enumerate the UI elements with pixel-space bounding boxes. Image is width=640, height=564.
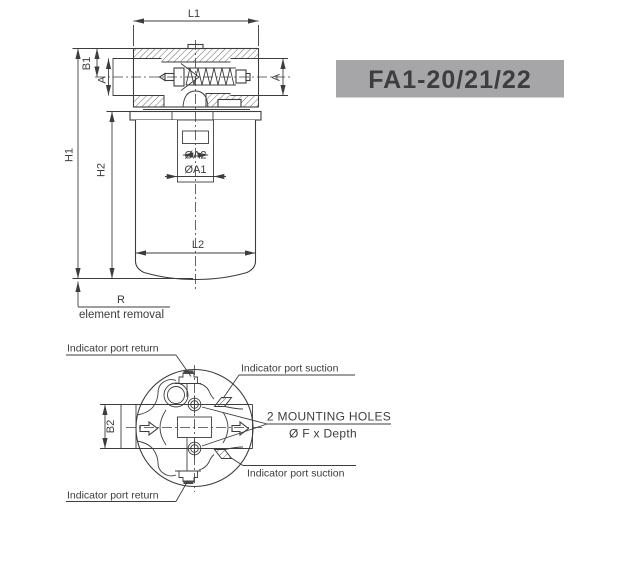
annotation-return-bottom: Indicator port return: [66, 481, 188, 502]
mounting-holes-spec: Ø F x Depth: [289, 427, 357, 441]
model-banner: FA1-20/21/22: [336, 60, 564, 98]
side-view: L1 H1 H2 B1 A A: [64, 8, 294, 321]
annotation-suction-bottom: Indicator port suction: [231, 458, 357, 480]
dim-a-right-label: A: [271, 73, 283, 81]
bottom-view: B2 Indicator port return Indicator port …: [66, 343, 391, 502]
dim-a-left-label: A: [97, 76, 109, 84]
dim-r-element-removal: R element removal: [78, 282, 170, 322]
element-removal-note: element removal: [79, 309, 164, 321]
return-fitting-bottom: [175, 438, 201, 484]
dim-da2-label: ØA2: [184, 150, 206, 162]
dim-da2: ØA2: [183, 150, 208, 162]
diagram-canvas: L1 H1 H2 B1 A A: [0, 0, 640, 564]
suction-port-wedge-bottom: [215, 450, 232, 459]
technical-drawing-page: L1 H1 H2 B1 A A: [0, 0, 640, 564]
return-bottom-label: Indicator port return: [67, 490, 159, 502]
dim-a-right: A: [271, 59, 284, 96]
dim-b2-label: B2: [105, 420, 117, 433]
annotation-mounting-holes: 2 MOUNTING HOLES Ø F x Depth: [202, 407, 391, 446]
dim-h2: H2: [96, 112, 131, 279]
dim-b2: B2: [100, 405, 121, 449]
return-port-circle: [164, 383, 188, 407]
dim-h1-label: H1: [64, 148, 76, 162]
dim-l2-label: L2: [192, 239, 204, 251]
dim-l1: L1: [134, 8, 259, 46]
annotation-suction-top: Indicator port suction: [223, 363, 355, 399]
annotation-return-top: Indicator port return: [66, 343, 191, 377]
dim-b1-label: B1: [81, 57, 93, 70]
suction-port-wedge-top: [215, 398, 232, 407]
dim-l1-label: L1: [188, 8, 200, 20]
suction-top-label: Indicator port suction: [241, 363, 339, 375]
dim-a-left: A: [97, 59, 109, 96]
return-top-label: Indicator port return: [67, 343, 159, 355]
dim-b1: B1: [81, 49, 97, 78]
mounting-holes-label: 2 MOUNTING HOLES: [267, 410, 391, 424]
dim-r-label: R: [117, 294, 125, 306]
dim-h2-label: H2: [96, 163, 108, 177]
flow-arrow-left: [140, 422, 158, 435]
suction-bottom-label: Indicator port suction: [247, 468, 345, 480]
model-number: FA1-20/21/22: [368, 66, 532, 94]
dim-da1-label: ØA1: [184, 164, 206, 176]
